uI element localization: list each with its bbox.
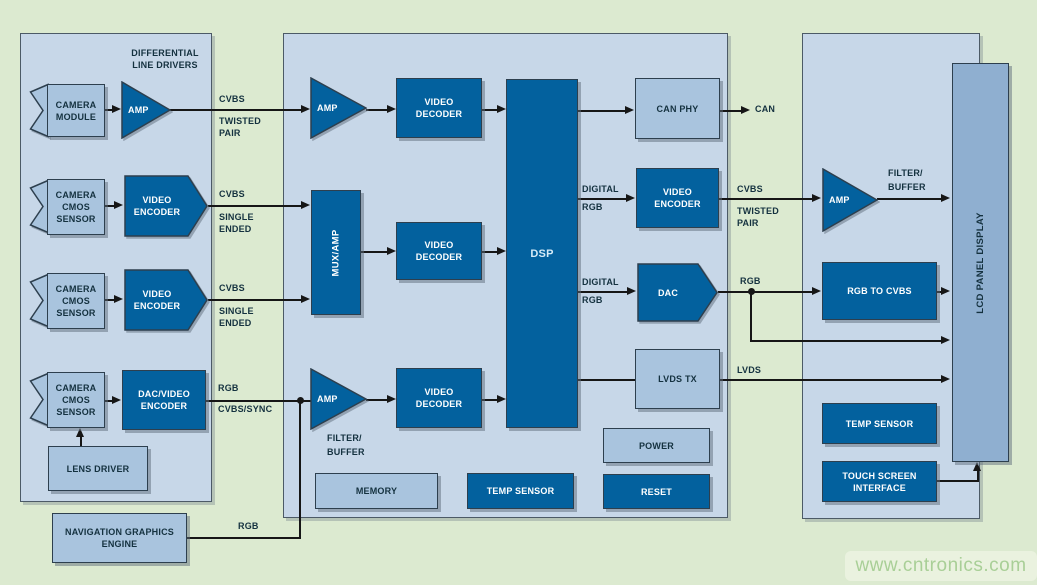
lens-driver-block: LENS DRIVER [48, 446, 148, 491]
signal-label-can: CAN [755, 104, 775, 116]
connector-lvds-to-lcd [720, 379, 942, 381]
power-block: POWER [603, 428, 710, 463]
signal-label-lvds: LVDS [737, 365, 761, 377]
arrowhead [301, 201, 310, 209]
arrowhead [741, 106, 750, 114]
connector-rgb-drop [750, 292, 752, 341]
arrowhead [812, 287, 821, 295]
signal-label-rgb-3: RGB [582, 295, 603, 307]
connector-dsp-canphy [578, 110, 626, 112]
temp-sensor-block-mid: TEMP SENSOR [467, 473, 574, 509]
signal-label-rgb-nav: RGB [238, 521, 259, 533]
arrowhead [112, 105, 121, 113]
video-encoder-label: VIDEO ENCODER [124, 175, 190, 237]
signal-label-digital-2: DIGITAL [582, 277, 619, 289]
dac-pentagon: DAC [637, 263, 718, 322]
signal-label-rgb-4: RGB [740, 276, 761, 288]
arrowhead [941, 336, 950, 344]
video-encoder-pentagon-1: VIDEO ENCODER [124, 175, 208, 237]
amp-label: AMP [829, 168, 850, 232]
arrowhead [626, 194, 635, 202]
amp-triangle-left: AMP [121, 81, 171, 139]
navigation-label: NAVIGATION GRAPHICS ENGINE [65, 526, 175, 550]
amp-triangle-mid-1: AMP [310, 77, 367, 139]
amp-triangle-right: AMP [822, 168, 878, 232]
arrowhead [301, 295, 310, 303]
lcd-panel-label: LCD PANEL DISPLAY [975, 212, 987, 314]
arrowhead [941, 375, 950, 383]
reset-block: RESET [603, 474, 710, 509]
video-decoder-label: VIDEO DECODER [409, 386, 469, 410]
arrowhead [973, 462, 981, 471]
signal-label-cvbs-4: CVBS [737, 184, 763, 196]
signal-label-single-ended-2: SINGLE ENDED [219, 306, 267, 329]
arrowhead [112, 396, 121, 404]
camera-icon [29, 273, 49, 328]
junction-dot-nav [297, 397, 304, 404]
connector-dsp-encoder [578, 198, 627, 200]
block-diagram: DIFFERENTIAL LINE DRIVERS CAMERA MODULE … [0, 0, 1037, 585]
touch-screen-interface-block: TOUCH SCREEN INTERFACE [822, 461, 937, 502]
video-encoder-label: VIDEO ENCODER [648, 186, 708, 210]
connector-touch-2 [977, 471, 979, 481]
touch-screen-label: TOUCH SCREEN INTERFACE [835, 470, 925, 494]
arrowhead [497, 395, 506, 403]
video-decoder-block-3: VIDEO DECODER [396, 368, 482, 428]
camera-icon [29, 83, 49, 138]
camera-icon [29, 372, 49, 427]
arrowhead [941, 194, 950, 202]
signal-label-digital-1: DIGITAL [582, 184, 619, 196]
rgb-to-cvbs-block: RGB TO CVBS [822, 262, 937, 320]
connector-rgb-to-lcd [750, 340, 942, 342]
memory-block: MEMORY [315, 473, 438, 509]
filter-buffer-caption-mid: FILTER/ BUFFER [327, 431, 373, 459]
lvds-tx-block: LVDS TX [635, 349, 720, 409]
signal-label-cvbs-3: CVBS [219, 283, 245, 295]
arrowhead [301, 105, 310, 113]
signal-label-cvbs-sync: CVBS/SYNC [218, 404, 272, 416]
signal-label-rgb-2: RGB [582, 202, 603, 214]
video-decoder-block-1: VIDEO DECODER [396, 78, 482, 138]
connector-vd1-dsp [482, 109, 497, 111]
arrowhead [387, 395, 396, 403]
connector-dsp-dac [578, 291, 627, 293]
connector-nav-rgb-v [299, 401, 301, 538]
arrowhead [625, 106, 634, 114]
camera-module-block: CAMERA MODULE [47, 84, 105, 137]
camera-cmos-sensor-block-1: CAMERA CMOS SENSOR [47, 179, 105, 235]
amp-label: AMP [128, 81, 149, 139]
navigation-graphics-engine-block: NAVIGATION GRAPHICS ENGINE [52, 513, 187, 563]
connector-cvbs-single-ended-1 [208, 205, 303, 207]
dac-label: DAC [637, 263, 699, 322]
video-decoder-block-2: VIDEO DECODER [396, 222, 482, 280]
connector-cvbs-single-ended-2 [208, 299, 303, 301]
arrowhead [941, 287, 950, 295]
watermark: www.cntronics.com [845, 551, 1037, 581]
signal-label-cvbs-1: CVBS [219, 94, 245, 106]
arrowhead [114, 295, 123, 303]
connector-touch-1 [937, 480, 979, 482]
signal-label-rgb-1: RGB [218, 383, 239, 395]
connector-dac-rgb [718, 291, 813, 293]
signal-label-twisted-pair-2: TWISTED PAIR [737, 206, 791, 229]
camera-cmos-sensor-block-2: CAMERA CMOS SENSOR [47, 273, 105, 329]
connector-ampR-lcd [877, 198, 942, 200]
arrowhead [497, 105, 506, 113]
video-encoder-label: VIDEO ENCODER [124, 269, 190, 331]
connector-nav-rgb-h [187, 537, 301, 539]
amp-label: AMP [317, 77, 338, 139]
amp-triangle-mid-2: AMP [310, 368, 367, 430]
camera-cmos-sensor-block-3: CAMERA CMOS SENSOR [47, 372, 105, 428]
arrowhead [627, 287, 636, 295]
arrowhead [76, 428, 84, 437]
amp-label: AMP [317, 368, 338, 430]
connector-mux-vd2 [361, 251, 387, 253]
video-decoder-label: VIDEO DECODER [409, 96, 469, 120]
mux-amp-label: MUX/AMP [330, 229, 342, 276]
video-decoder-label: VIDEO DECODER [409, 239, 469, 263]
dac-video-encoder-block: DAC/VIDEO ENCODER [122, 370, 206, 430]
connector-dsp-lvds [578, 379, 635, 381]
lcd-panel-display-block: LCD PANEL DISPLAY [952, 63, 1009, 462]
arrowhead [387, 247, 396, 255]
connector-vd2-dsp [482, 251, 497, 253]
signal-label-single-ended-1: SINGLE ENDED [219, 212, 267, 235]
filter-buffer-caption-right: FILTER/ BUFFER [888, 166, 938, 194]
arrowhead [812, 194, 821, 202]
video-encoder-block-mid: VIDEO ENCODER [636, 168, 719, 228]
connector-lens-driver [80, 437, 82, 446]
watermark-text: www.cntronics.com [855, 555, 1026, 577]
signal-label-cvbs-2: CVBS [219, 189, 245, 201]
can-phy-block: CAN PHY [635, 78, 720, 139]
temp-sensor-block-right: TEMP SENSOR [822, 403, 937, 444]
connector-cvbs-twisted-pair-1 [170, 109, 301, 111]
arrowhead [387, 105, 396, 113]
video-encoder-pentagon-2: VIDEO ENCODER [124, 269, 208, 331]
arrowhead [114, 201, 123, 209]
mux-amp-block: MUX/AMP [311, 190, 361, 315]
connector-rgb-cvbs-sync [206, 400, 311, 402]
connector-vd3-dsp [482, 399, 497, 401]
connector-amp1-vd1 [366, 109, 387, 111]
signal-label-twisted-pair-1: TWISTED PAIR [219, 116, 271, 139]
arrowhead [497, 247, 506, 255]
connector-can-out [720, 110, 741, 112]
left-panel-title: DIFFERENTIAL LINE DRIVERS [123, 48, 207, 71]
connector-cvbs-twisted-pair-2 [719, 198, 813, 200]
connector-amp3-vd3 [366, 399, 387, 401]
dsp-block: DSP [506, 79, 578, 428]
camera-icon [29, 179, 49, 234]
